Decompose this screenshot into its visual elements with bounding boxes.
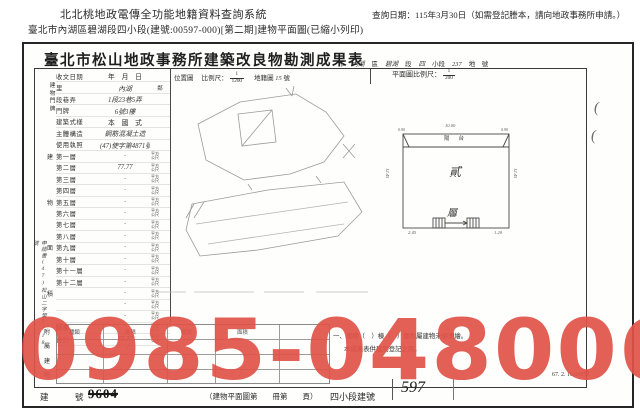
form-title-annotation: 市內湖區碧湖段四小段237地 號 bbox=[338, 58, 495, 68]
table-row: ·平方公尺 bbox=[56, 300, 170, 311]
row-label: 第十層 bbox=[56, 255, 100, 264]
title-annotation-printed: 區 bbox=[372, 61, 379, 68]
document-path: 臺北市內湖區碧湖段四小段(建號:00597-000)[第二期]建物平面圖(已縮小… bbox=[28, 22, 363, 36]
row-unit: 平方公尺 bbox=[150, 301, 160, 309]
row-label: 第三層 bbox=[56, 175, 100, 184]
row-label: 第二層 bbox=[56, 163, 100, 172]
row-value: · bbox=[100, 244, 150, 251]
balcony-label: 陽台 bbox=[444, 134, 473, 142]
dim-bottom-left: 2.45 bbox=[408, 230, 416, 235]
title-annotation-handwritten: 碧湖 bbox=[385, 61, 398, 68]
dim-stair: 4.20 bbox=[449, 212, 457, 217]
row-value: 年 月 日 bbox=[100, 71, 150, 81]
group-label-char: 物 bbox=[47, 198, 55, 207]
scale-denominator: 200 bbox=[443, 75, 455, 82]
form-title: 臺北市松山地政事務所建築改良物勘測成果表 bbox=[44, 49, 364, 70]
plan-book-reference: （建物平面圖第 冊第 頁） bbox=[205, 391, 318, 402]
new-building-number: 597 bbox=[392, 379, 454, 400]
row-value: · bbox=[100, 221, 150, 228]
floor-plan-scale-label: 平面圖比例尺： bbox=[392, 71, 441, 79]
annex-header: 種類 bbox=[181, 328, 192, 336]
row-value: · bbox=[100, 176, 150, 183]
map-sheet-label: 地籍圖 bbox=[254, 75, 274, 82]
row-value: 1段23巷5弄 bbox=[100, 94, 150, 104]
header-divider bbox=[370, 68, 371, 84]
row-value: 6號3樓 bbox=[100, 106, 150, 116]
location-map-scale-fraction: 11200 bbox=[230, 72, 244, 84]
table-row: ·平方公尺 bbox=[56, 311, 170, 322]
row-value: · bbox=[100, 187, 150, 194]
row-label: 第七層 bbox=[56, 220, 100, 229]
table-row: 收文日期年 月 日 bbox=[56, 71, 170, 82]
group-label-char: 面 bbox=[47, 243, 55, 252]
annex-header: 面積 bbox=[237, 328, 248, 336]
title-annotation-handwritten: 內湖 bbox=[352, 61, 365, 68]
row-value: · bbox=[100, 256, 150, 263]
title-annotation-handwritten: 237 bbox=[452, 61, 462, 68]
annex-building-grid: 種類 面積 種類 面積 / / / bbox=[56, 324, 330, 384]
group-label-char: 物 bbox=[44, 370, 52, 379]
old-building-number-struck: 9604 bbox=[88, 386, 118, 402]
location-map-scale-label: 比例尺： bbox=[202, 75, 228, 82]
page: 北北桃地政電傳全功能地籍資料查詢系統 查詢日期：115年3月30日（如需登記謄本… bbox=[0, 0, 640, 414]
dim-bottom-right: 1.20 bbox=[494, 230, 502, 235]
application-number-note: 申請書(47)松山二字第9718號 bbox=[31, 240, 47, 348]
row-label: 第五層 bbox=[56, 198, 100, 207]
row-label: 建築式樣 bbox=[56, 117, 100, 126]
row-label: 使用執照 bbox=[56, 140, 100, 149]
row-value: · bbox=[100, 210, 150, 217]
new-building-number-label: 四小段建號 bbox=[330, 390, 375, 403]
title-annotation-printed: 市 bbox=[338, 61, 345, 68]
row-label: 段巷弄 bbox=[56, 95, 100, 104]
row-value: · bbox=[100, 290, 150, 297]
annex-header: 面積 bbox=[125, 328, 136, 336]
row-label: 收文日期 bbox=[56, 72, 100, 81]
group-label-char: 建 bbox=[44, 356, 52, 365]
row-label: 第一層 bbox=[56, 152, 100, 161]
row-value: 77.77 bbox=[100, 164, 150, 171]
dim-balcony-right: 0.90 bbox=[501, 127, 508, 132]
row-value: · bbox=[100, 153, 150, 160]
location-map-header: 位置圖 比例尺：11200 地籍圖 15 號 bbox=[174, 72, 290, 85]
row-label: 主體構造 bbox=[56, 129, 100, 138]
row-label: 第八層 bbox=[56, 232, 100, 241]
row-value: 鋼筋混凝土造 bbox=[100, 128, 150, 138]
title-annotation-printed: 地 號 bbox=[469, 61, 489, 68]
dim-balcony-left: 0.90 bbox=[398, 127, 405, 132]
dim-top: 10.00 bbox=[445, 123, 455, 128]
row-value: · bbox=[100, 233, 150, 240]
row-value: · bbox=[100, 301, 150, 308]
location-map-sketch bbox=[148, 84, 373, 299]
annex-slash-mark: / bbox=[127, 342, 129, 351]
row-label: 第十二層 bbox=[56, 278, 100, 287]
group-label-area: 建物面積 bbox=[47, 152, 55, 298]
group-label-char: 積 bbox=[47, 289, 55, 298]
row-value: · bbox=[100, 199, 150, 206]
form-note: 一、建物（ ）棟（ ）層附屬建物未併測繪。 bbox=[333, 331, 578, 340]
map-sheet-unit: 號 bbox=[283, 75, 290, 82]
row-label: 門牌 bbox=[56, 106, 100, 115]
print-run-note: 67. 2. 10,000張 bbox=[552, 369, 590, 378]
row-value: · bbox=[100, 279, 150, 286]
floor-plan-floor-character: 貳 bbox=[449, 163, 461, 180]
annex-header: 種類 bbox=[69, 328, 80, 336]
row-label: 第九層 bbox=[56, 243, 100, 252]
group-label-char: 建 bbox=[47, 152, 55, 161]
row-unit: 平方公尺 bbox=[150, 312, 160, 320]
form-note: 本成果表供建物登記之用。 bbox=[344, 344, 579, 353]
row-value: · bbox=[100, 313, 150, 320]
floor-plan-scale-fraction: 1200 bbox=[443, 69, 455, 81]
map-sheet-number: 15 bbox=[275, 75, 282, 82]
title-annotation-printed: 小段 bbox=[432, 61, 445, 68]
dim-right: 12.45 bbox=[513, 168, 518, 178]
query-date: 查詢日期：115年3月30日（如需登記謄本，請向地政事務所申請。） bbox=[372, 9, 625, 21]
scale-numerator: 1 bbox=[448, 68, 451, 74]
title-annotation-printed: 段 bbox=[405, 61, 412, 68]
title-annotation-handwritten: 四 bbox=[419, 61, 426, 68]
annex-slash-mark: / bbox=[183, 356, 185, 365]
row-value: · bbox=[100, 267, 150, 274]
building-number-label: 建 號 bbox=[40, 391, 93, 403]
row-label: 第六層 bbox=[56, 209, 100, 218]
row-value: 本 國 式 bbox=[100, 117, 150, 127]
row-value: (47)使字第4871號 bbox=[100, 140, 150, 150]
row-label: 第十一層 bbox=[56, 266, 100, 275]
annex-slash-mark: / bbox=[239, 370, 241, 379]
floor-plan-header: 平面圖比例尺：1200 bbox=[392, 69, 457, 81]
row-value: 內湖 bbox=[100, 83, 150, 93]
scale-numerator: 1 bbox=[236, 71, 239, 77]
row-label: 里 bbox=[56, 83, 100, 92]
system-title: 北北桃地政電傳全功能地籍資料查詢系統 bbox=[60, 6, 267, 22]
dim-left: 12.45 bbox=[385, 168, 390, 178]
location-map-label: 位置圖 bbox=[174, 75, 194, 82]
group-label-address: 建物門牌 bbox=[47, 82, 56, 116]
row-label: 第四層 bbox=[56, 186, 100, 195]
